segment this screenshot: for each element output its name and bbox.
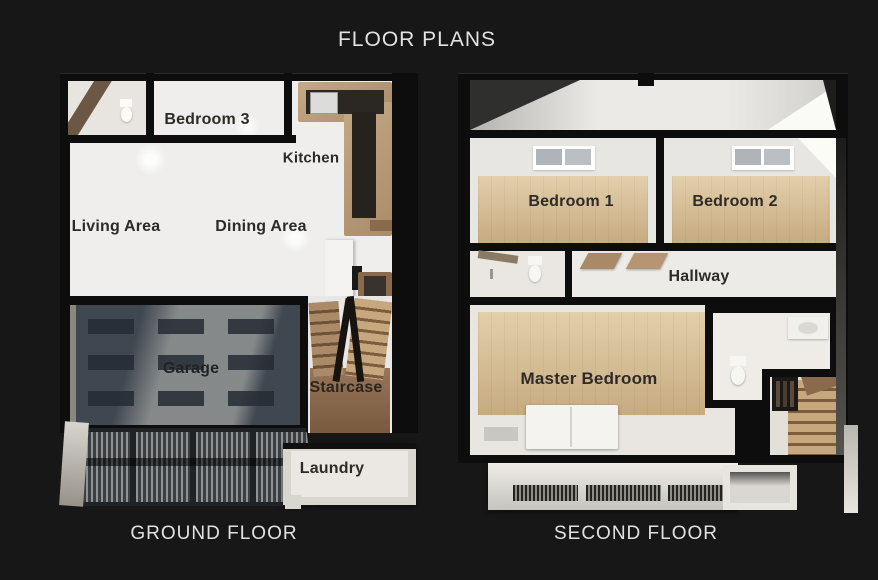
garage-tile — [228, 355, 274, 370]
stove-appliance — [310, 92, 338, 114]
roof-shade-left — [470, 80, 580, 130]
wall-living-garage — [60, 296, 308, 305]
skylight — [533, 146, 595, 170]
toilet-bowl — [731, 366, 745, 385]
roof-notch — [638, 73, 654, 86]
laundry-top-wall — [283, 443, 416, 449]
skylight-pane — [735, 149, 761, 165]
page-title: FLOOR PLANS — [338, 28, 496, 52]
toilet-bowl — [121, 107, 132, 122]
shower-fixture — [490, 269, 493, 279]
wall-roof-bedrooms — [460, 130, 846, 138]
garage-left-trim — [70, 305, 76, 425]
bed — [526, 405, 618, 449]
ground-bathroom — [68, 81, 146, 135]
room-label-dining: Dining Area — [215, 218, 306, 236]
stair-beam — [68, 81, 113, 135]
partition-wall — [325, 240, 353, 298]
bed-centerline — [570, 407, 572, 447]
wall-bath-bedroom3 — [146, 73, 154, 143]
garage-tile — [158, 319, 204, 334]
floor-plans-image: FLOOR PLANS Bedroom 3 Kitchen Living Are… — [0, 0, 878, 580]
lower-balcony — [488, 463, 738, 510]
driveway-panel — [136, 432, 190, 502]
laundry-notch — [285, 495, 301, 509]
kitchen-countertop-dark2 — [352, 112, 376, 218]
wall-shelf — [370, 220, 392, 231]
right-exterior-wall — [836, 138, 846, 455]
bedroom2 — [664, 138, 838, 243]
right-exterior-sliver — [844, 425, 858, 513]
roof-highlight-right — [760, 80, 836, 130]
ground-right-wall — [392, 73, 418, 433]
wardrobe — [772, 377, 798, 411]
toilet-tank — [120, 99, 132, 107]
second-stairwell — [770, 377, 838, 455]
garage-tile — [158, 391, 204, 406]
room-label-hallway: Hallway — [669, 268, 730, 286]
hallway-door — [626, 253, 669, 269]
balcony-grate — [668, 485, 728, 501]
wall-bedrooms-hallway — [460, 243, 846, 251]
wall-toprow-living — [60, 135, 296, 143]
toilet-tank — [528, 256, 542, 265]
hallway-door — [580, 253, 623, 269]
hanging-clothes — [790, 381, 794, 407]
wall-bed1-bed2 — [656, 138, 664, 243]
ground-floor-caption: GROUND FLOOR — [130, 523, 297, 545]
room-label-bedroom2: Bedroom 2 — [692, 193, 777, 211]
room-label-master: Master Bedroom — [521, 369, 658, 389]
shower-rail — [478, 250, 519, 263]
skylight-pane — [536, 149, 562, 165]
second-floor-caption: SECOND FLOOR — [554, 523, 718, 545]
room-label-staircase: Staircase — [310, 379, 383, 397]
lower-right-room — [723, 465, 797, 510]
skylight-pane — [764, 149, 790, 165]
room-label-living: Living Area — [72, 218, 161, 236]
balcony-grate — [586, 485, 661, 501]
bedroom1 — [470, 138, 656, 243]
second-bathroom-left — [470, 251, 565, 297]
ground-floor-plan: Bedroom 3 Kitchen Living Area Dining Are… — [58, 70, 420, 515]
toilet-bowl — [529, 265, 541, 282]
wall-hallway-master — [460, 297, 846, 305]
room-label-bedroom1: Bedroom 1 — [528, 193, 613, 211]
wall-bedroom3-kitchen — [284, 73, 292, 143]
room-label-kitchen: Kitchen — [283, 150, 339, 167]
room-label-bedroom3: Bedroom 3 — [164, 111, 249, 129]
master-wood-floor — [478, 312, 705, 415]
wall-garage-stair — [300, 296, 308, 433]
roof-strip — [470, 80, 836, 130]
driveway-panel — [196, 432, 250, 502]
hanging-clothes — [776, 381, 780, 407]
garage-tile — [228, 391, 274, 406]
toilet-tank — [730, 356, 746, 366]
garage-tile — [88, 319, 134, 334]
second-floor-plan: Bedroom 1 Bedroom 2 Hallway — [458, 70, 850, 515]
skylight-pane — [565, 149, 591, 165]
staircase-zone — [308, 296, 392, 433]
room-label-garage: Garage — [163, 360, 219, 378]
garage-tile — [228, 319, 274, 334]
hanging-clothes — [783, 381, 787, 407]
balcony-grate — [513, 485, 578, 501]
garage-tile — [88, 391, 134, 406]
garage-tile — [88, 355, 134, 370]
bedroom2-corner-light — [798, 138, 838, 180]
room-label-laundry: Laundry — [300, 460, 365, 478]
skylight — [732, 146, 794, 170]
sink-basin — [798, 322, 818, 334]
driveway-shadow — [68, 458, 316, 466]
wall-bath-hallway — [565, 251, 572, 297]
driveway — [68, 428, 316, 506]
floor-mat — [484, 427, 518, 441]
